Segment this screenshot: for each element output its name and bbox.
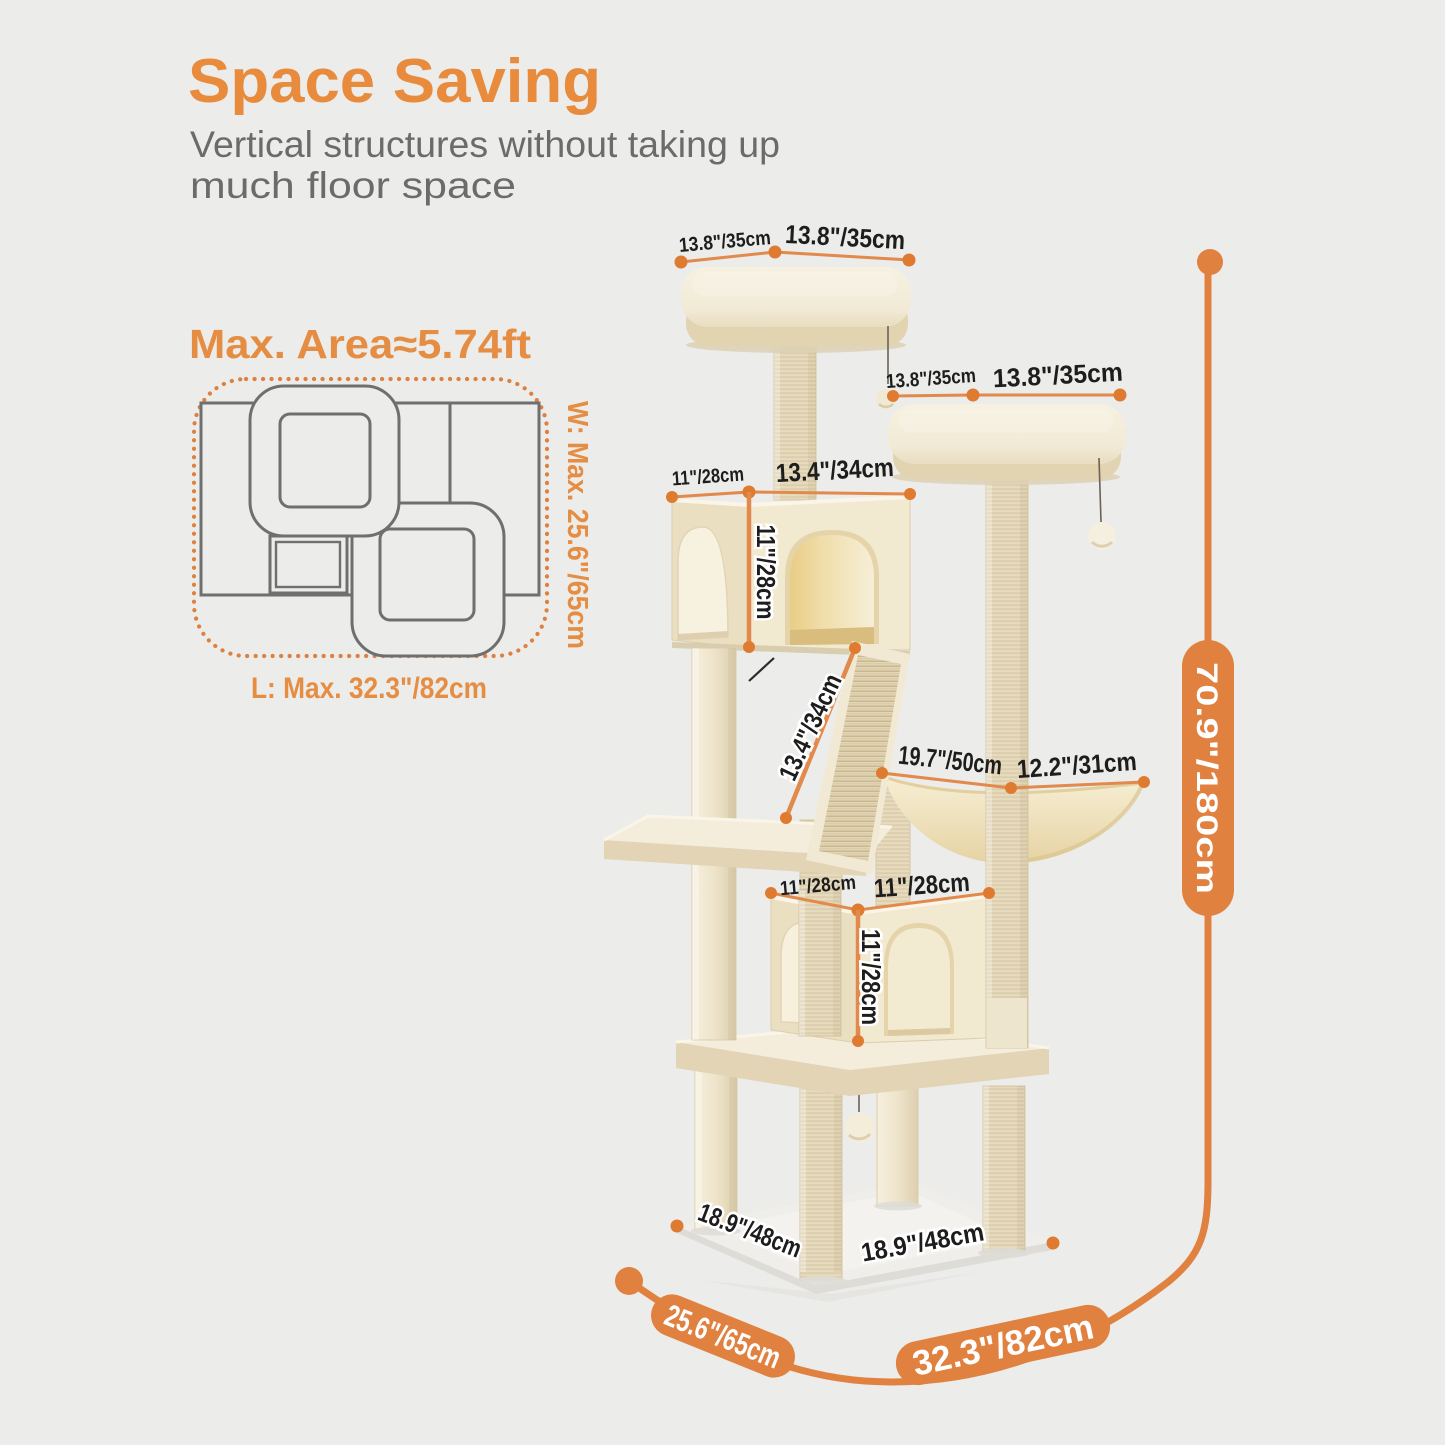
svg-text:70.9"/180cm: 70.9"/180cm	[1190, 662, 1223, 894]
svg-text:Space Saving: Space Saving	[188, 47, 601, 116]
svg-text:Vertical structures without ta: Vertical structures without taking up	[190, 124, 780, 165]
svg-text:11"/28cm: 11"/28cm	[751, 525, 781, 620]
svg-text:much floor space: much floor space	[190, 165, 516, 206]
svg-text:13.8"/35cm: 13.8"/35cm	[784, 219, 905, 255]
svg-text:11"/28cm: 11"/28cm	[856, 929, 886, 1025]
svg-text:13.4"/34cm: 13.4"/34cm	[775, 452, 894, 488]
svg-text:W: Max. 25.6"/65cm: W: Max. 25.6"/65cm	[561, 401, 593, 649]
svg-text:Max. Area≈5.74ft: Max. Area≈5.74ft	[189, 321, 531, 367]
svg-text:L: Max. 32.3"/82cm: L: Max. 32.3"/82cm	[251, 672, 487, 705]
